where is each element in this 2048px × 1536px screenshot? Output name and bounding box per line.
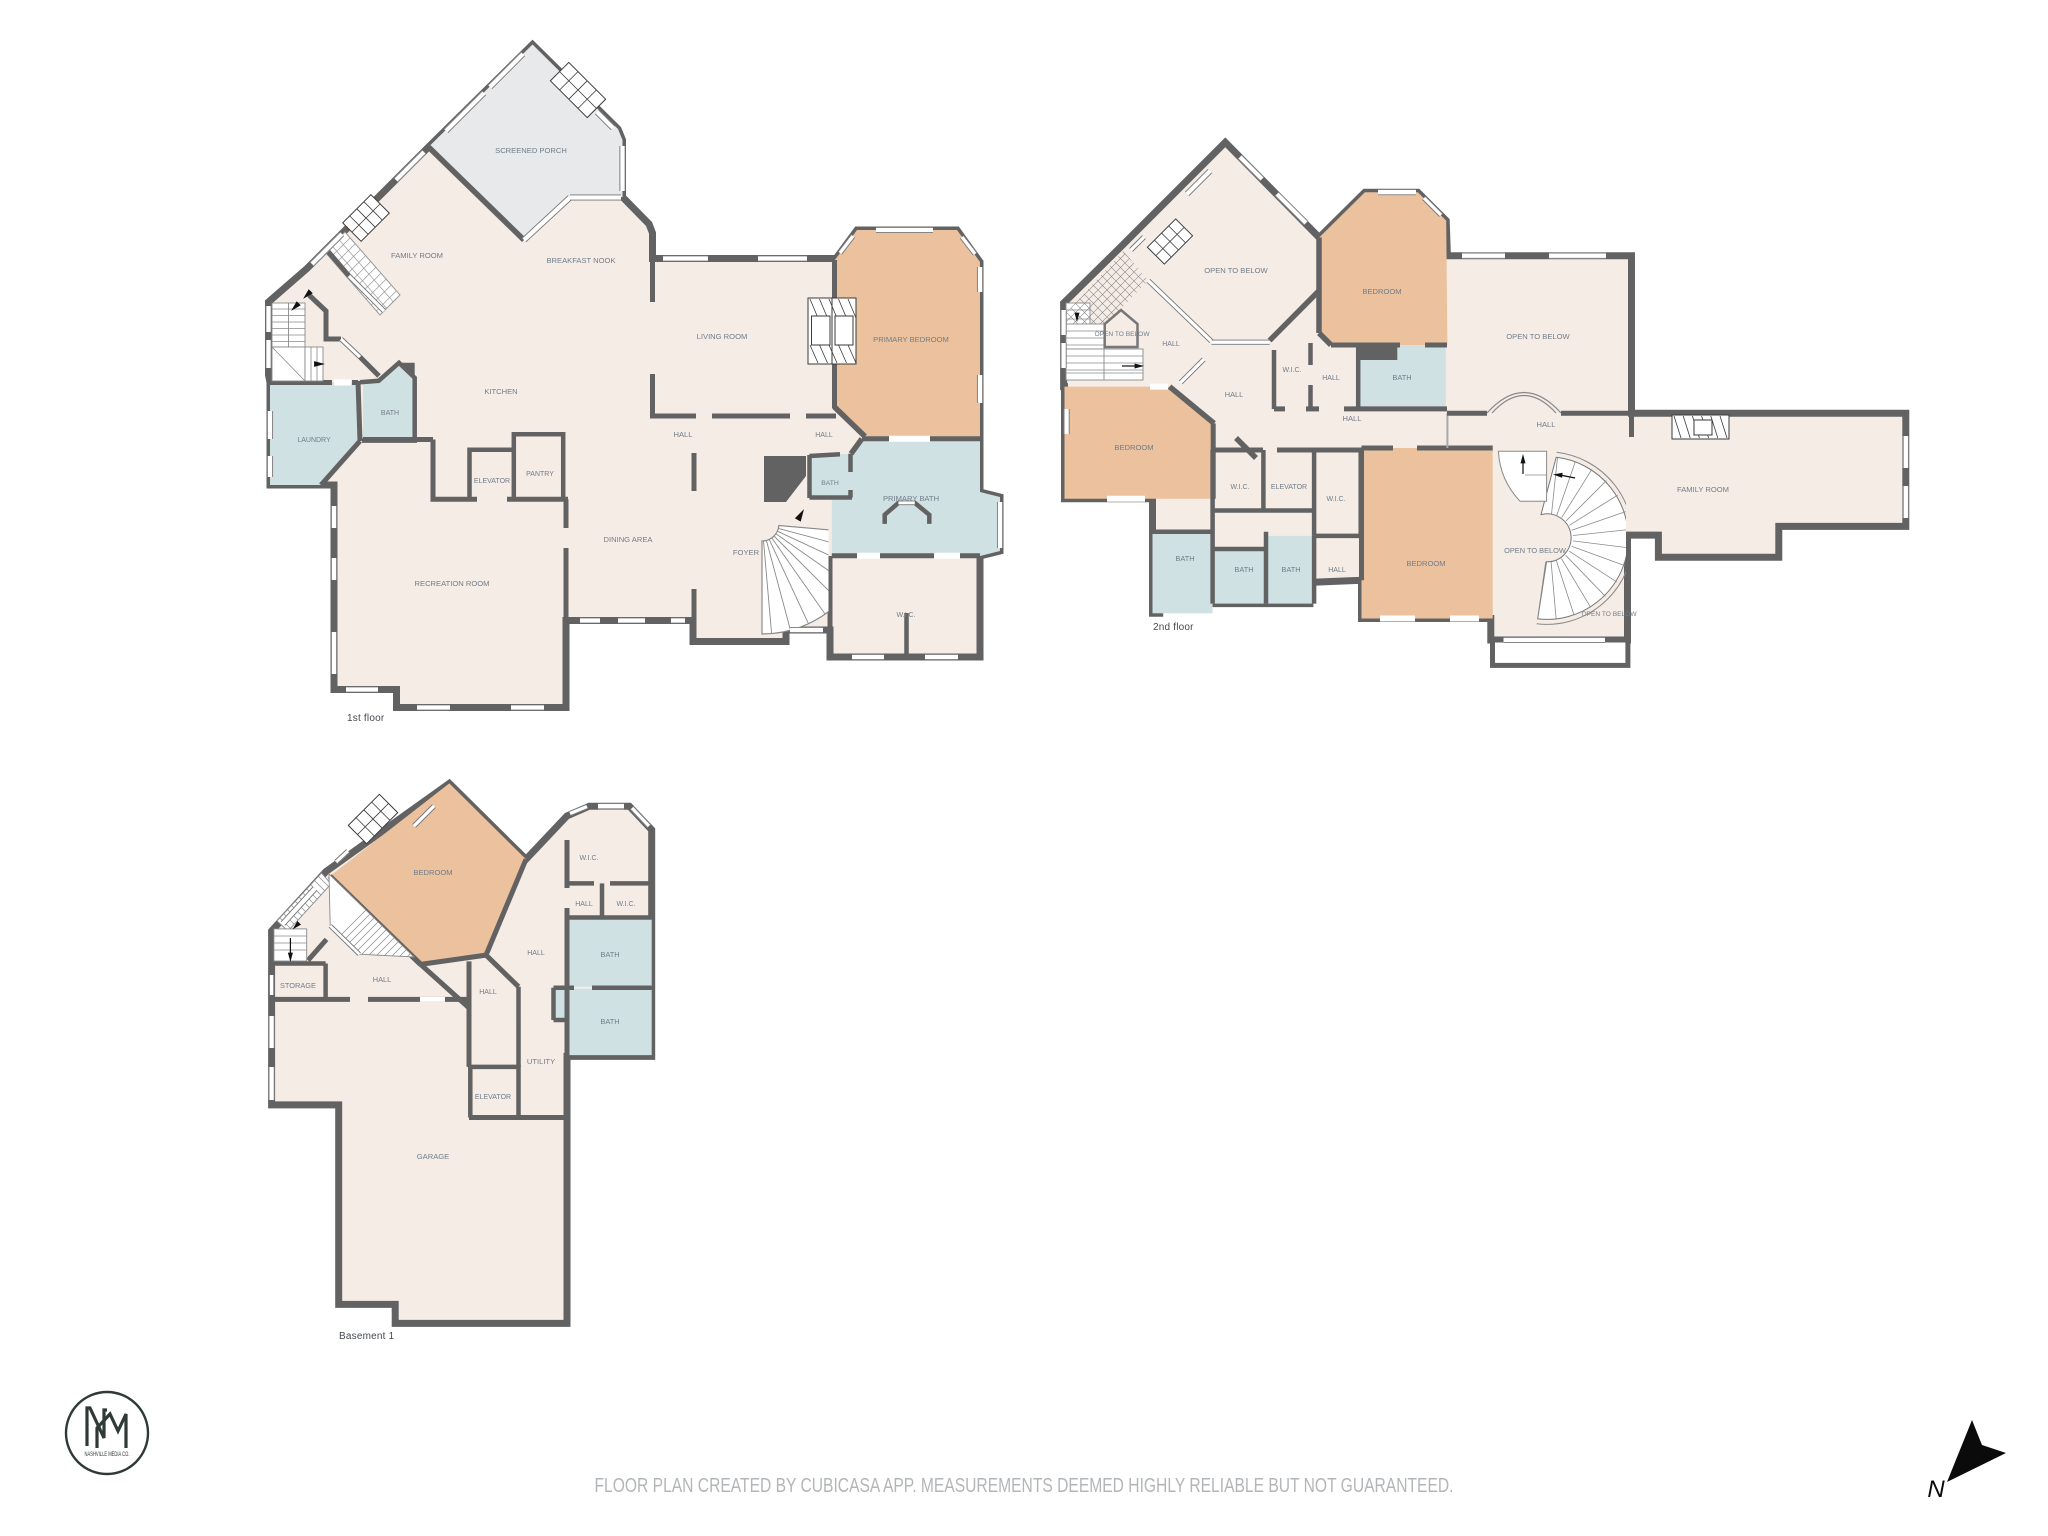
svg-text:NASHVILLE MEDIA CO.: NASHVILLE MEDIA CO. bbox=[85, 1451, 130, 1458]
svg-text:W.I.C.: W.I.C. bbox=[579, 855, 598, 862]
svg-text:FLOOR PLAN CREATED BY CUBICASA: FLOOR PLAN CREATED BY CUBICASA APP. MEAS… bbox=[595, 1474, 1454, 1497]
svg-text:OPEN TO BELOW: OPEN TO BELOW bbox=[1094, 331, 1150, 338]
svg-text:BREAKFAST NOOK: BREAKFAST NOOK bbox=[546, 256, 615, 265]
svg-text:ELEVATOR: ELEVATOR bbox=[474, 478, 510, 485]
svg-text:FAMILY ROOM: FAMILY ROOM bbox=[1677, 485, 1729, 494]
svg-text:BATH: BATH bbox=[1281, 565, 1300, 574]
svg-text:LIVING ROOM: LIVING ROOM bbox=[697, 332, 748, 341]
svg-text:BATH: BATH bbox=[600, 1017, 619, 1026]
svg-text:HALL: HALL bbox=[1162, 341, 1180, 348]
svg-text:BEDROOM: BEDROOM bbox=[413, 868, 452, 877]
svg-text:HALL: HALL bbox=[1328, 567, 1346, 574]
svg-text:OPEN TO BELOW: OPEN TO BELOW bbox=[1204, 266, 1268, 275]
svg-text:FAMILY ROOM: FAMILY ROOM bbox=[391, 251, 443, 260]
svg-text:HALL: HALL bbox=[1225, 390, 1244, 399]
svg-text:W.I.C.: W.I.C. bbox=[896, 612, 915, 619]
svg-text:HALL: HALL bbox=[373, 975, 392, 984]
svg-text:Basement 1: Basement 1 bbox=[339, 1331, 395, 1342]
svg-text:BEDROOM: BEDROOM bbox=[1406, 559, 1445, 568]
svg-text:OPEN TO BELOW: OPEN TO BELOW bbox=[1506, 332, 1570, 341]
svg-text:2nd floor: 2nd floor bbox=[1153, 622, 1194, 633]
svg-text:PANTRY: PANTRY bbox=[526, 471, 554, 478]
svg-text:W.I.C.: W.I.C. bbox=[1326, 496, 1345, 503]
svg-text:LAUNDRY: LAUNDRY bbox=[297, 437, 331, 444]
svg-text:PRIMARY BATH: PRIMARY BATH bbox=[883, 494, 939, 503]
svg-text:1st floor: 1st floor bbox=[347, 713, 385, 724]
svg-text:HALL: HALL bbox=[1322, 375, 1340, 382]
svg-text:BATH: BATH bbox=[1234, 565, 1253, 574]
svg-text:HALL: HALL bbox=[674, 430, 693, 439]
svg-text:BATH: BATH bbox=[381, 410, 399, 417]
svg-text:GARAGE: GARAGE bbox=[417, 1152, 450, 1161]
svg-text:OPEN TO BELOW: OPEN TO BELOW bbox=[1581, 611, 1637, 618]
svg-text:W.I.C.: W.I.C. bbox=[1282, 367, 1301, 374]
svg-text:OPEN TO BELOW: OPEN TO BELOW bbox=[1504, 546, 1566, 555]
svg-text:PRIMARY BEDROOM: PRIMARY BEDROOM bbox=[873, 335, 949, 344]
svg-text:N: N bbox=[1927, 1476, 1945, 1503]
svg-text:BATH: BATH bbox=[821, 480, 839, 487]
svg-text:HALL: HALL bbox=[575, 901, 593, 908]
svg-text:DINING AREA: DINING AREA bbox=[604, 535, 654, 544]
svg-text:ELEVATOR: ELEVATOR bbox=[1271, 484, 1307, 491]
svg-text:W.I.C.: W.I.C. bbox=[616, 901, 635, 908]
svg-text:SCREENED PORCH: SCREENED PORCH bbox=[495, 146, 567, 155]
svg-text:BEDROOM: BEDROOM bbox=[1362, 287, 1401, 296]
svg-text:HALL: HALL bbox=[1343, 414, 1362, 423]
svg-text:HALL: HALL bbox=[815, 432, 833, 439]
svg-text:HALL: HALL bbox=[1537, 420, 1556, 429]
svg-text:BATH: BATH bbox=[1175, 554, 1194, 563]
svg-text:RECREATION ROOM: RECREATION ROOM bbox=[415, 579, 490, 588]
svg-text:STORAGE: STORAGE bbox=[280, 981, 316, 990]
svg-text:HALL: HALL bbox=[479, 989, 497, 996]
svg-text:KITCHEN: KITCHEN bbox=[484, 387, 517, 396]
svg-text:FOYER: FOYER bbox=[733, 548, 760, 557]
svg-text:UTILITY: UTILITY bbox=[527, 1057, 555, 1066]
svg-text:W.I.C.: W.I.C. bbox=[1230, 484, 1249, 491]
svg-text:ELEVATOR: ELEVATOR bbox=[475, 1094, 511, 1101]
svg-text:BEDROOM: BEDROOM bbox=[1114, 443, 1153, 452]
svg-text:BATH: BATH bbox=[600, 950, 619, 959]
svg-text:HALL: HALL bbox=[527, 950, 545, 957]
svg-text:BATH: BATH bbox=[1392, 373, 1411, 382]
